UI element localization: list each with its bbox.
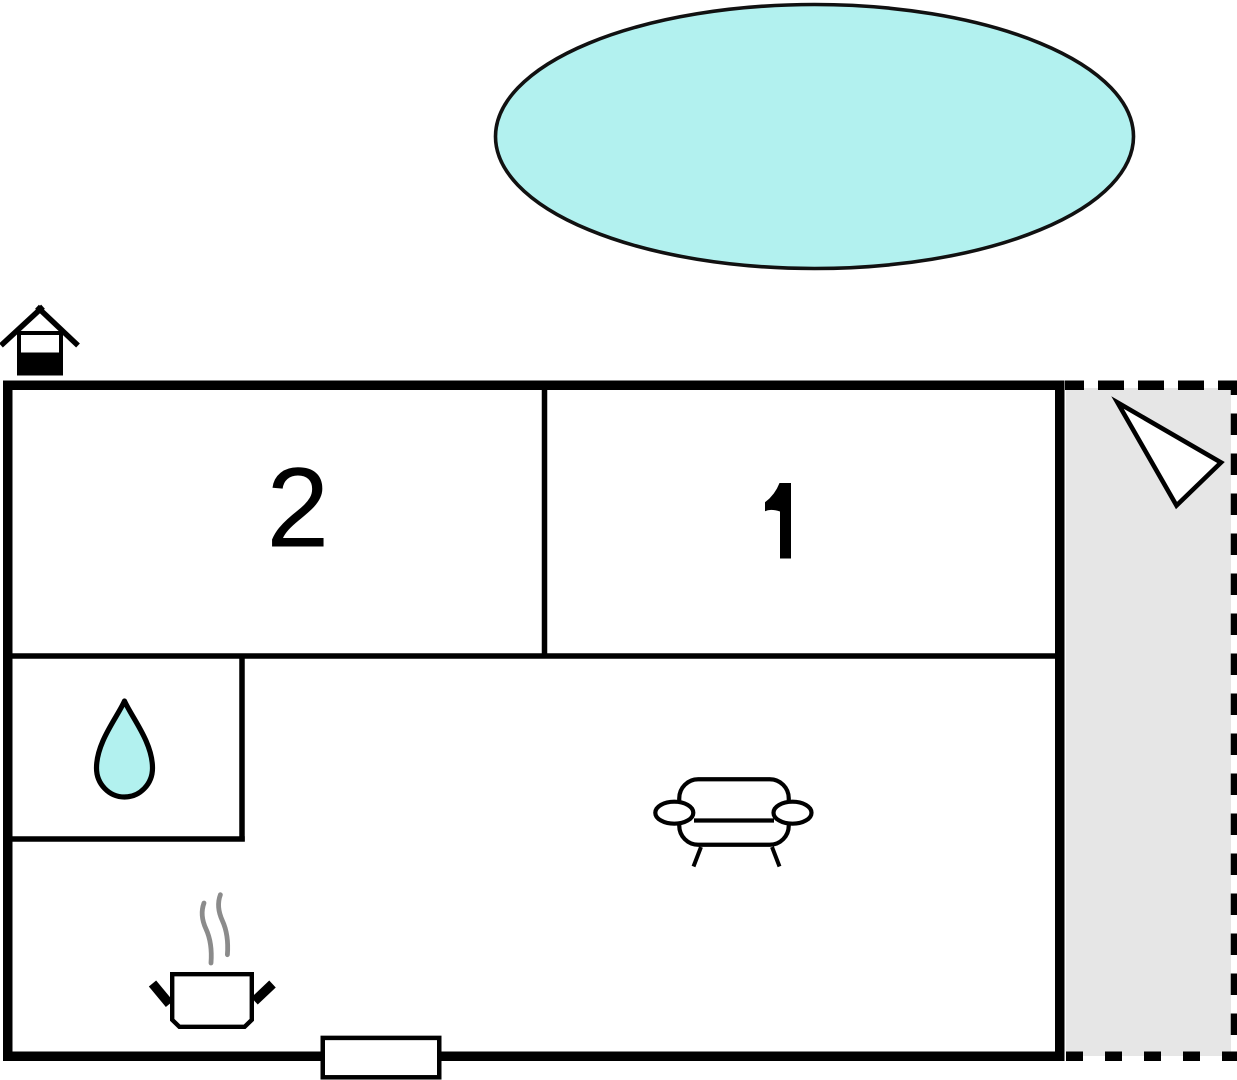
svg-text:2: 2 bbox=[266, 445, 329, 571]
